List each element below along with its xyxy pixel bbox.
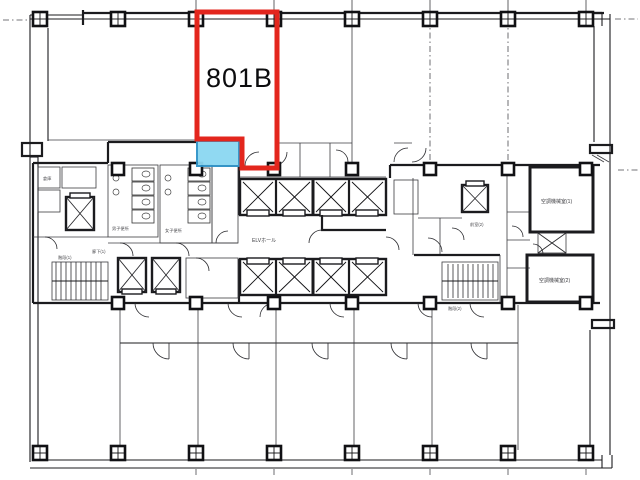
building-outline <box>22 10 614 468</box>
elevators-lower-left <box>118 258 180 294</box>
hvac-rooms: 空調機械室(1) 空調機械室(2) <box>527 167 593 302</box>
stairs-left-label: 階段(1) <box>58 254 72 261</box>
hvac-room-2-label: 空調機械室(2) <box>539 277 570 284</box>
toilet-men-label: 男子便所 <box>112 225 129 232</box>
floor-plan-page: 倉庫 男子便所 女子便所 <box>0 0 640 480</box>
core-corridor-label: 廊下(1) <box>92 248 106 255</box>
stairs-left: 階段(1) <box>52 254 108 300</box>
elevator-hall-label: ELVホール <box>252 238 276 244</box>
toilet-women: 女子便所 <box>160 165 212 243</box>
floor-plan-svg: 倉庫 男子便所 女子便所 <box>0 0 640 480</box>
columns-bottom-row <box>33 446 593 460</box>
storage-label: 倉庫 <box>43 175 51 182</box>
lower-floor-area <box>33 303 600 450</box>
elevator-right-service <box>462 181 488 212</box>
toilet-women-label: 女子便所 <box>165 227 182 234</box>
highlight-room-box <box>197 141 239 166</box>
unit-801b-label: 801B <box>206 63 273 93</box>
grid-axis-lines <box>3 0 638 478</box>
anteroom-label: 前室(2) <box>470 221 484 228</box>
hvac-room-1-label: 空調機械室(1) <box>541 198 572 205</box>
stairs-right-label: 階段(2) <box>448 305 462 312</box>
service-elevator <box>66 193 94 230</box>
